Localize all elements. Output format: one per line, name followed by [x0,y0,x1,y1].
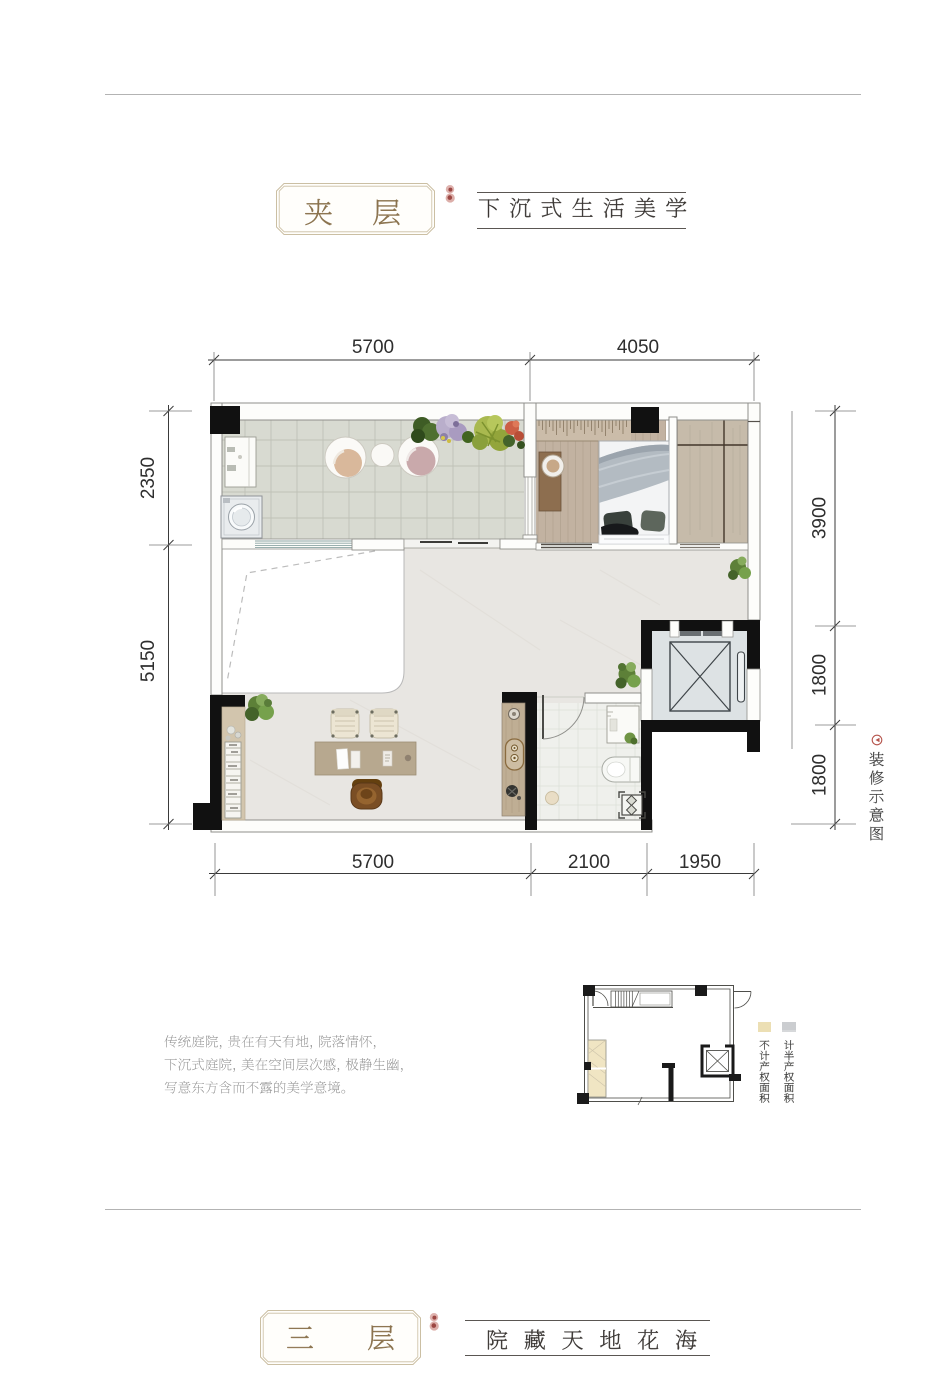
svg-text:1800: 1800 [810,654,831,696]
svg-text:1950: 1950 [679,852,721,873]
svg-text:5150: 5150 [138,640,159,682]
svg-text:2350: 2350 [138,457,159,499]
svg-text:2100: 2100 [568,852,610,873]
svg-text:5700: 5700 [352,337,394,358]
svg-text:1800: 1800 [810,754,831,796]
svg-text:3900: 3900 [810,497,831,539]
svg-text:4050: 4050 [617,337,659,358]
svg-text:5700: 5700 [352,852,394,873]
